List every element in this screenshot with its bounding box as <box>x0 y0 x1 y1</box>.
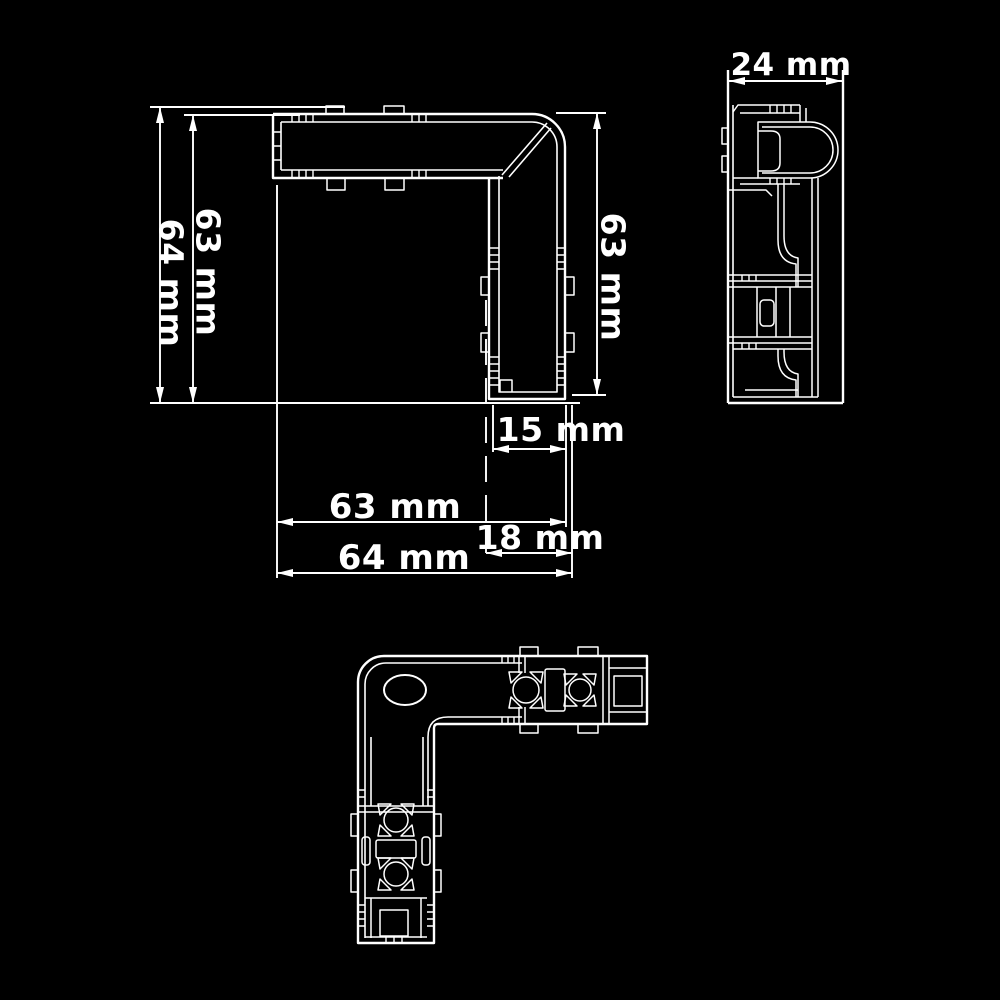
dim-label-18mm: 18 mm <box>476 518 605 557</box>
dim-label-15mm: 15 mm <box>497 410 626 449</box>
back-view <box>351 647 647 943</box>
front-view <box>273 106 574 399</box>
dim-label-24mm: 24 mm <box>730 47 851 83</box>
dimension-annotations: 64 mm 63 mm 63 mm 15 mm 63 mm 18 mm 64 m… <box>150 47 852 578</box>
technical-drawing-canvas: 64 mm 63 mm 63 mm 15 mm 63 mm 18 mm 64 m… <box>0 0 1000 1000</box>
dim-label-64mm-bottom: 64 mm <box>338 538 471 578</box>
dim-label-63mm-bottom: 63 mm <box>329 487 462 527</box>
dim-label-64mm-left: 64 mm <box>152 219 191 348</box>
corner-connector-drawing: 64 mm 63 mm 63 mm 15 mm 63 mm 18 mm 64 m… <box>0 0 1000 1000</box>
dim-label-63mm-left: 63 mm <box>189 208 228 337</box>
dim-label-63mm-right: 63 mm <box>594 213 633 342</box>
side-view <box>722 70 843 403</box>
